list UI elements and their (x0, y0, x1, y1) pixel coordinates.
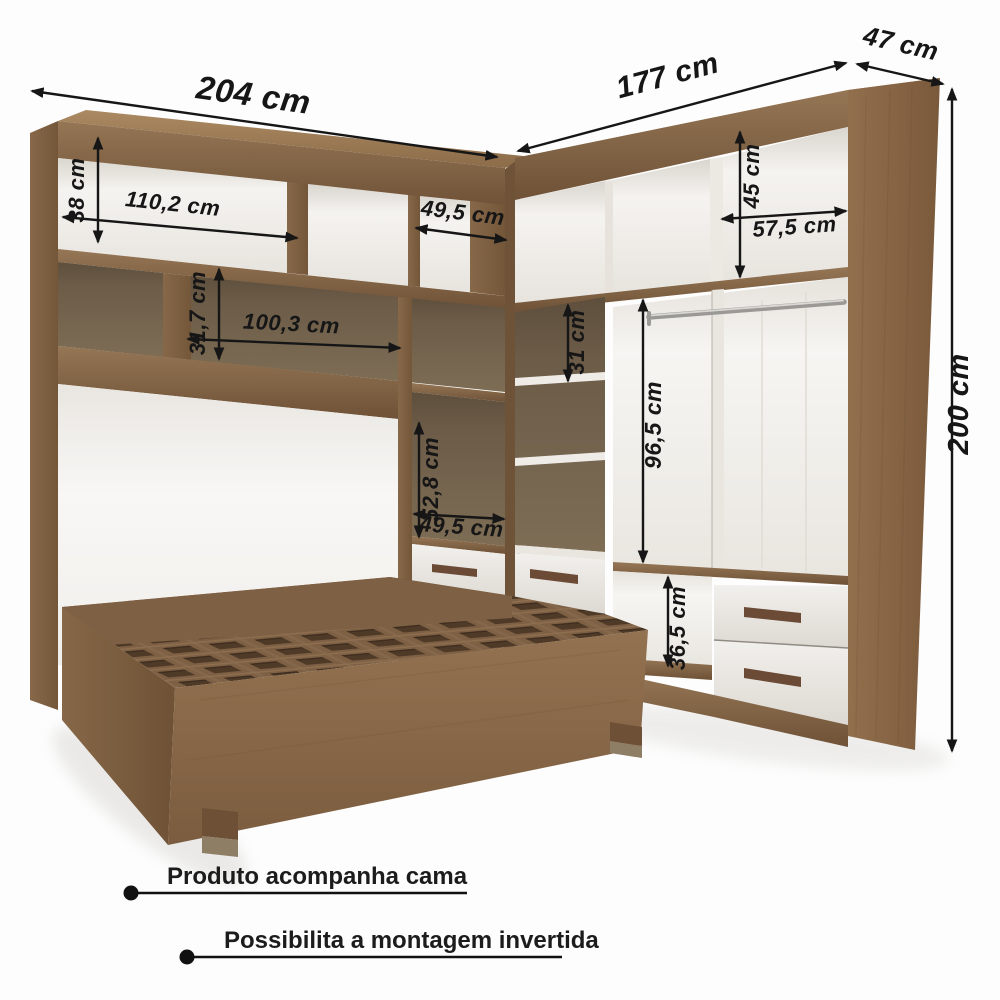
dim-label-hanging-height: 96,5 cm (640, 381, 666, 469)
dim-label-niche-height: 36,5 cm (665, 586, 690, 670)
dim-label-right-cubby-height: 45 cm (739, 144, 764, 210)
dim-label-side-column-height: 52,8 cm (418, 437, 443, 521)
hanging-divider-panel (712, 289, 724, 572)
top-cubby-middle (308, 184, 408, 286)
dim-label-height: 200 cm (943, 353, 975, 455)
dim-label-top-cubby-height: 38 cm (64, 158, 89, 223)
note-text: Possibilita a montagem invertida (224, 927, 599, 954)
dim-niche-height: 36,5 cm (665, 577, 690, 670)
corner-column-back (515, 297, 605, 552)
dim-label-right-shelf-gap: 31 cm (564, 310, 589, 375)
furniture-dimension-diagram: 204 cm 177 cm 47 cm 200 cm 38 cm 110,2 c… (0, 0, 1000, 1000)
dim-label-opening-width: 100,3 cm (242, 308, 340, 338)
dim-right-shelf-gap: 31 cm (564, 305, 589, 381)
dim-label-mid-shelf-height: 31,7 cm (185, 271, 210, 355)
right-top-cubby (515, 181, 605, 303)
cubby-divider (287, 182, 308, 275)
mid-cubby-left (58, 262, 163, 357)
panel-divider (710, 157, 723, 288)
note-text: Produto acompanha cama (167, 863, 468, 890)
mid-cubby-right (398, 297, 505, 392)
left-wardrobe-side-panel (30, 121, 58, 710)
diagram-canvas: 204 cm 177 cm 47 cm 200 cm 38 cm 110,2 c… (0, 0, 1000, 1000)
cubby-divider (408, 195, 420, 287)
panel-divider (605, 180, 613, 297)
right-top-cubby (613, 159, 710, 296)
bed-leg (202, 808, 238, 840)
